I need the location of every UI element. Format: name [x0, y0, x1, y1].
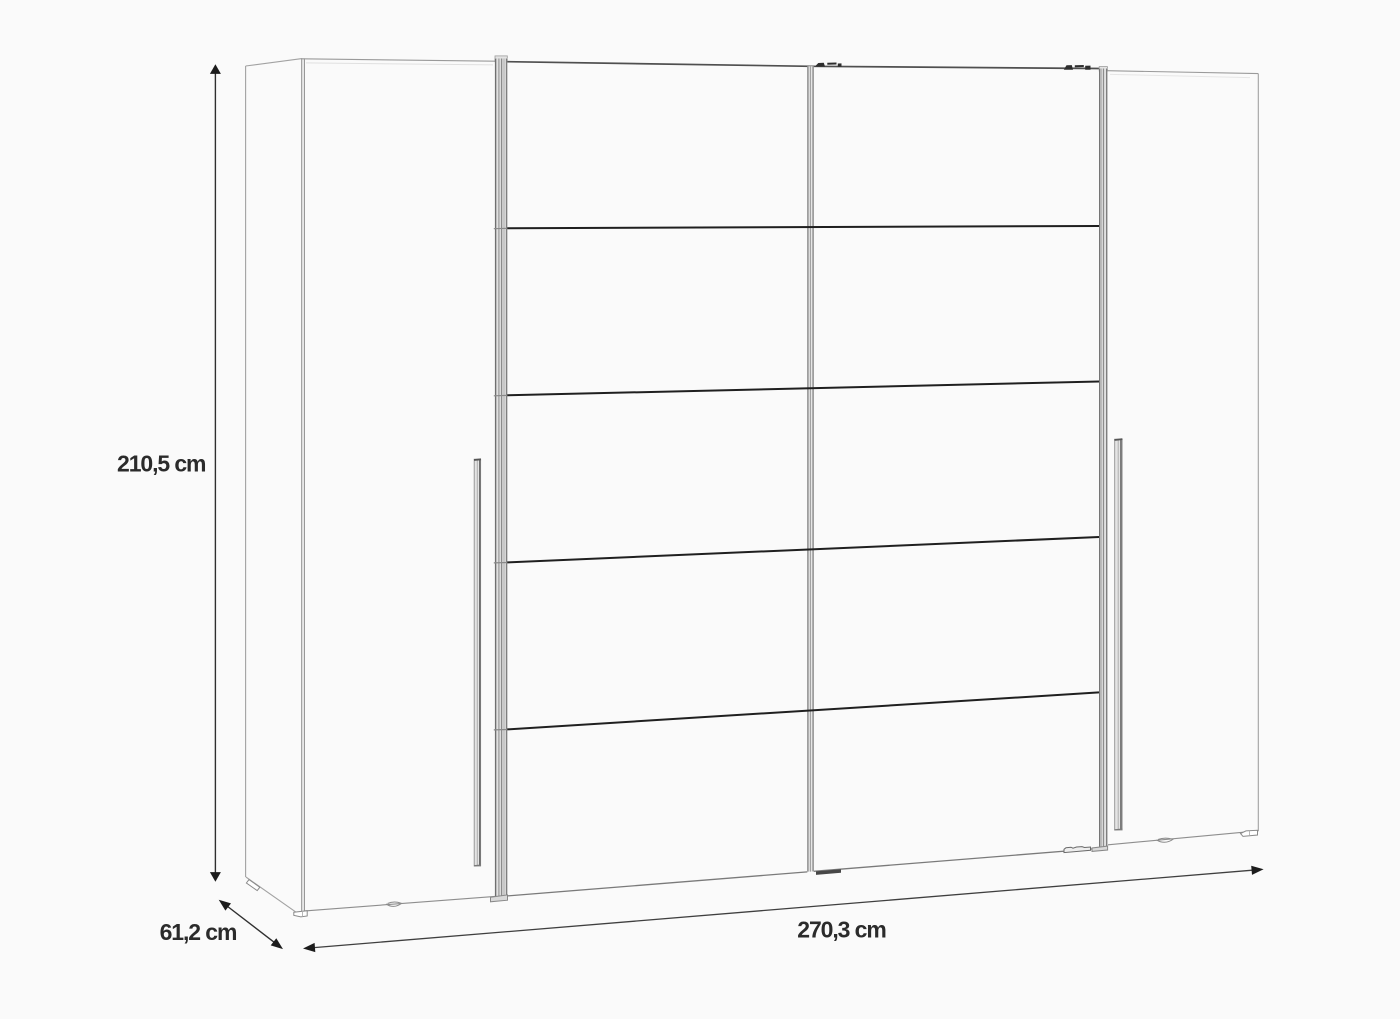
- svg-text:270,3 cm: 270,3 cm: [797, 917, 886, 943]
- svg-text:210,5 cm: 210,5 cm: [117, 451, 206, 477]
- svg-text:61,2 cm: 61,2 cm: [160, 919, 237, 945]
